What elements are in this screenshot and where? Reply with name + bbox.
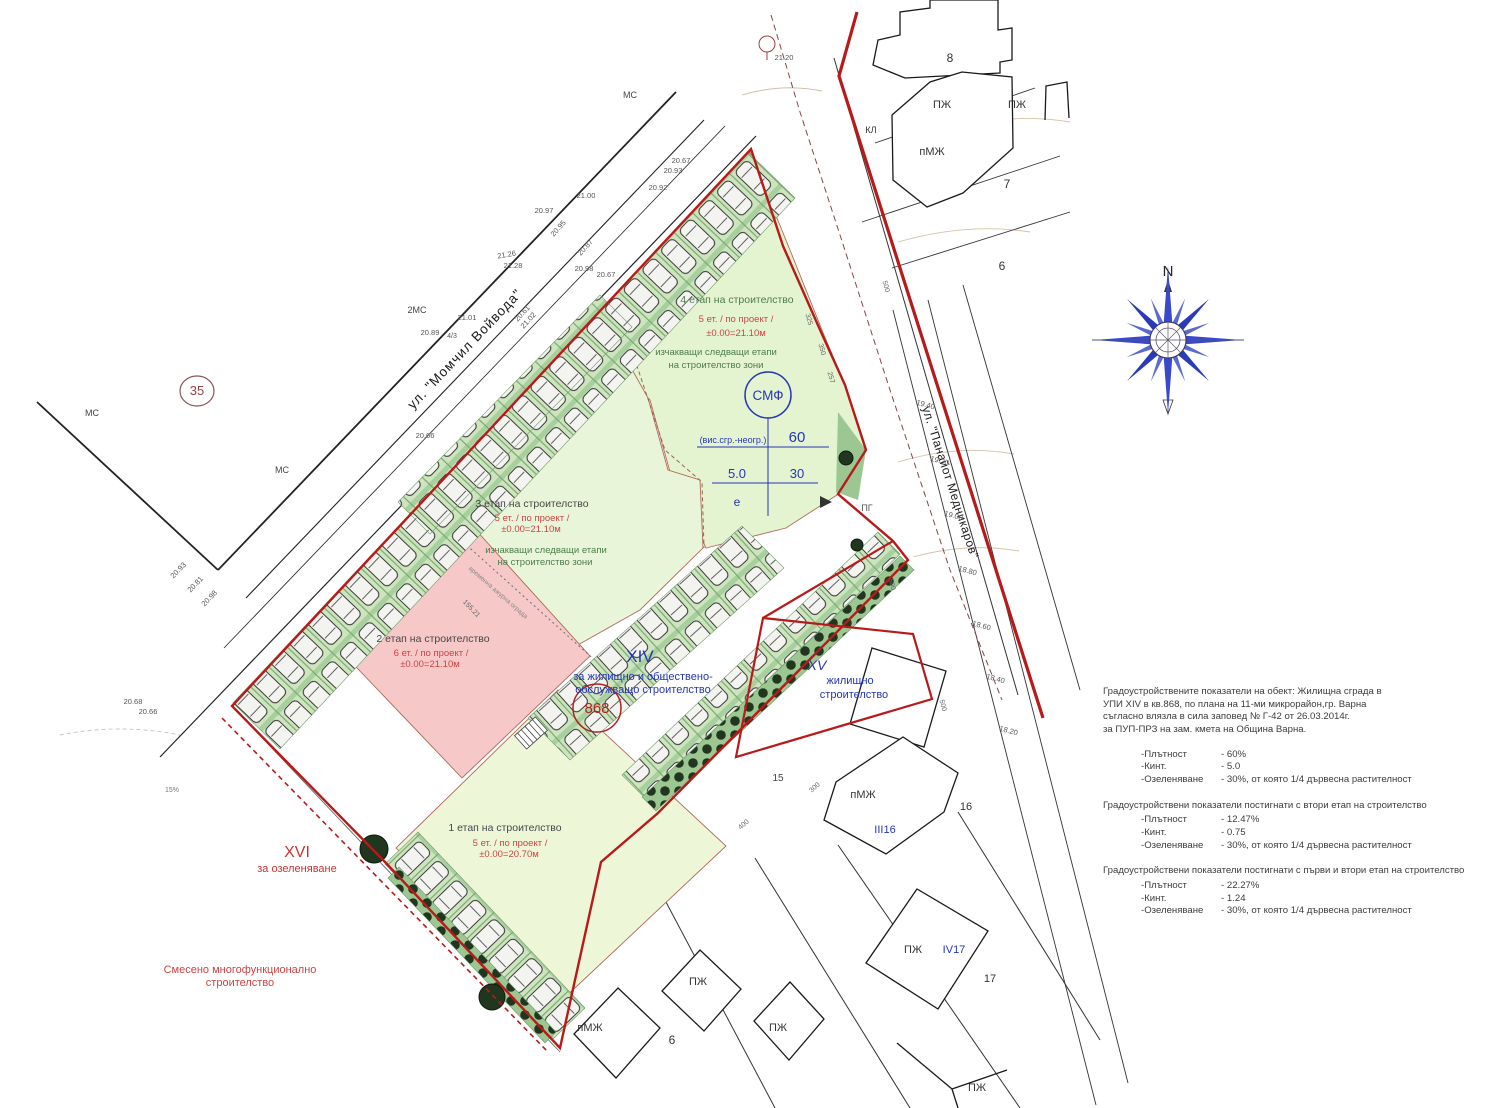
site-plan-page: ул. "Момчил Войвода"ул. "Панайот Медника… bbox=[0, 0, 1500, 1108]
stage4-level: ±0.00=21.10м bbox=[706, 328, 766, 339]
stat-label: -Кинт. bbox=[1141, 893, 1221, 906]
plan-label: 2МС bbox=[407, 305, 427, 315]
plan-label: ПЖ bbox=[769, 1022, 787, 1034]
plan-label: ПЖ bbox=[968, 1082, 986, 1094]
plan-label: МС bbox=[85, 408, 99, 418]
stat-label: -Озеленяване bbox=[1141, 905, 1221, 918]
plan-label: 20.92 bbox=[649, 183, 668, 192]
plan-label: 500 bbox=[880, 280, 890, 293]
stats-group-stage1-2: Градоустройствени показатели постигнати … bbox=[1103, 865, 1483, 918]
plan-label: IV17 bbox=[943, 944, 966, 956]
stage3-floors: 5 ет. / по проект / bbox=[495, 513, 570, 524]
plan-label: 20.93 bbox=[664, 166, 683, 175]
smf-value-e: е bbox=[734, 495, 741, 509]
stat-label: -Кинт. bbox=[1141, 827, 1221, 840]
plan-label: 20.98 bbox=[199, 588, 219, 608]
stat-label: -Кинт. bbox=[1141, 761, 1221, 774]
plan-label: ПЖ bbox=[904, 944, 922, 956]
stage2-title: 2 етап на строителство bbox=[376, 633, 489, 645]
stat-value: - 60% bbox=[1221, 749, 1483, 762]
plan-label: МС bbox=[623, 90, 637, 100]
stage3-level: ±0.00=21.10м bbox=[501, 524, 561, 535]
plan-label: 20.97 bbox=[535, 206, 554, 215]
plan-label: 21.20 bbox=[775, 53, 794, 62]
plan-label: 20.87 bbox=[576, 237, 595, 257]
stat-value: - 5.0 bbox=[1221, 761, 1483, 774]
stats-group-stage2: Градоустройствени показатели постигнати … bbox=[1103, 800, 1483, 853]
stat-value: - 22.27% bbox=[1221, 880, 1483, 893]
stage3-note-2: на строителство зони bbox=[498, 557, 593, 568]
stats-group-title: Градоустройствени показатели постигнати … bbox=[1103, 800, 1483, 813]
stage2-level: ±0.00=21.10м bbox=[400, 659, 460, 670]
plan-label: 16 bbox=[960, 801, 972, 813]
site-plan-drawing: ул. "Момчил Войвода"ул. "Панайот Медника… bbox=[0, 0, 1500, 1108]
parcel-xiv-use-2: обслужващо строителство bbox=[575, 684, 711, 696]
stage3-note-1: изчакващи следващи етапи bbox=[485, 545, 607, 556]
stat-value: - 30%, от която 1/4 дървесна растителнос… bbox=[1221, 905, 1483, 918]
stats-intro-line: УПИ XIV в кв.868, по плана на 11-ми микр… bbox=[1103, 699, 1483, 712]
plan-label: ПЖ bbox=[689, 976, 707, 988]
plan-label: пМЖ bbox=[919, 146, 944, 158]
smf-value-5-0: 5.0 bbox=[728, 466, 746, 481]
plan-label: 4/3 bbox=[447, 333, 457, 340]
plan-label: 20.81 bbox=[185, 574, 205, 594]
plan-label: 21.28 bbox=[504, 261, 523, 270]
stage4-note-1: изчакващи следващи етапи bbox=[655, 347, 777, 358]
stats-group-overall: -Плътност- 60% -Кинт.- 5.0 -Озеленяване-… bbox=[1141, 749, 1483, 787]
stage4-note-2: на строителство зони bbox=[669, 360, 764, 371]
plan-label: 20.93 bbox=[168, 560, 188, 580]
plan-label: 20.66 bbox=[139, 707, 158, 716]
plan-label: 6 bbox=[669, 1033, 676, 1047]
plan-label: 21.26 bbox=[497, 248, 517, 260]
plan-label: 20.98 bbox=[575, 264, 594, 273]
stat-value: - 12.47% bbox=[1221, 814, 1483, 827]
stat-value: - 30%, от която 1/4 дървесна растителнос… bbox=[1221, 840, 1483, 853]
parcel-xv-use-2: строителство bbox=[820, 689, 888, 701]
building-pzh-east-partial bbox=[1045, 82, 1069, 120]
building-pmzh-north bbox=[892, 72, 1013, 207]
stat-value: - 0.75 bbox=[1221, 827, 1483, 840]
parcel-xiv-label: XIV bbox=[626, 647, 654, 666]
stage4-floors: 5 ет. / по проект / bbox=[699, 314, 774, 325]
plan-label: 21.01 bbox=[458, 313, 477, 322]
parcel-xv-label: XV bbox=[807, 657, 828, 673]
plan-label: III16 bbox=[874, 824, 895, 836]
parcel-xv-use-1: жилищно bbox=[826, 675, 873, 687]
stage1-floors: 5 ет. / по проект / bbox=[473, 838, 548, 849]
stats-group-title: Градоустройствени показатели постигнати … bbox=[1103, 865, 1483, 878]
plan-label: 8 bbox=[947, 51, 954, 65]
stat-label: -Озеленяване bbox=[1141, 774, 1221, 787]
stat-value: - 30%, от която 1/4 дървесна растителнос… bbox=[1221, 774, 1483, 787]
parcel-xiv-use-1: за жилищно и обществено- bbox=[573, 671, 713, 683]
stat-label: -Плътност bbox=[1141, 814, 1221, 827]
plan-label: 21.00 bbox=[577, 191, 596, 200]
stats-intro: Градоустройствените показатели на обект:… bbox=[1103, 686, 1483, 737]
building-8 bbox=[873, 0, 1012, 78]
building-pzh-iv17 bbox=[866, 889, 988, 1009]
stats-intro-line: за ПУП-ПРЗ на зам. кмета на Община Варна… bbox=[1103, 724, 1483, 737]
plan-label: 17 bbox=[984, 973, 996, 985]
tree-icon bbox=[851, 539, 863, 551]
plan-label: 15 bbox=[772, 773, 784, 784]
stage3-title: 3 етап на строителство bbox=[475, 498, 588, 510]
building-pzh-south-a bbox=[662, 950, 741, 1031]
plan-label: пМЖ bbox=[850, 789, 875, 801]
smf-value-60: 60 bbox=[789, 429, 806, 446]
plan-label: 300 bbox=[808, 781, 821, 794]
tree-icon bbox=[479, 984, 505, 1010]
quarter-868-label: 868 bbox=[584, 700, 609, 717]
smf-value-30: 30 bbox=[790, 466, 804, 481]
plan-label: 400 bbox=[737, 818, 750, 831]
plan-label: 6 bbox=[999, 259, 1006, 273]
smf-height-note: (вис.сгр.-неогр.) bbox=[700, 435, 767, 445]
stats-intro-line: Градоустройствените показатели на обект:… bbox=[1103, 686, 1483, 699]
parcel-xvi-use: за озеленяване bbox=[257, 863, 336, 875]
stat-value: - 1.24 bbox=[1221, 893, 1483, 906]
plan-label: пМЖ bbox=[577, 1022, 602, 1034]
mixed-use-note-2: строителство bbox=[206, 977, 274, 989]
plan-label: 20.68 bbox=[124, 697, 143, 706]
plan-label: КЛ bbox=[865, 125, 876, 135]
plan-label: ПГ bbox=[861, 503, 872, 513]
plan-label: 15% bbox=[165, 787, 179, 794]
stage2-floors: 6 ет. / по проект / bbox=[394, 648, 469, 659]
plan-label: 7 bbox=[1004, 177, 1011, 191]
compass-n-label: N bbox=[1163, 263, 1174, 280]
tree-icon bbox=[839, 451, 853, 465]
stat-label: -Озеленяване bbox=[1141, 840, 1221, 853]
plan-label: 20.67 bbox=[672, 156, 691, 165]
plan-label: ПЖ bbox=[1008, 99, 1026, 111]
parcel-35-label: 35 bbox=[190, 383, 204, 398]
manhole-symbol bbox=[759, 36, 775, 60]
stage1-title: 1 етап на строителство bbox=[448, 822, 561, 834]
stat-label: -Плътност bbox=[1141, 749, 1221, 762]
plan-label: ПЖ bbox=[933, 99, 951, 111]
stats-intro-line: съгласно влязла в сила заповед № Г-42 от… bbox=[1103, 711, 1483, 724]
stats-block: Градоустройствените показатели на обект:… bbox=[1103, 686, 1483, 918]
plan-label: 500 bbox=[937, 699, 947, 712]
plan-label: МС bbox=[275, 465, 289, 475]
building-pmzh-16 bbox=[824, 737, 958, 854]
plan-label: 20.67 bbox=[597, 270, 616, 279]
parcel-xvi-label: XVI bbox=[284, 844, 310, 861]
smf-circle-label: СМФ bbox=[753, 388, 784, 403]
plan-label: 20.89 bbox=[421, 328, 440, 337]
stat-label: -Плътност bbox=[1141, 880, 1221, 893]
stage1-level: ±0.00=20.70м bbox=[479, 849, 539, 860]
plan-label: 20.66 bbox=[416, 431, 435, 440]
mixed-use-note-1: Смесено многофункционално bbox=[164, 964, 317, 976]
compass-rose bbox=[1092, 266, 1244, 414]
stage4-title: 4 етап на строителство bbox=[680, 294, 793, 306]
building-pzh-south-b bbox=[754, 982, 824, 1060]
